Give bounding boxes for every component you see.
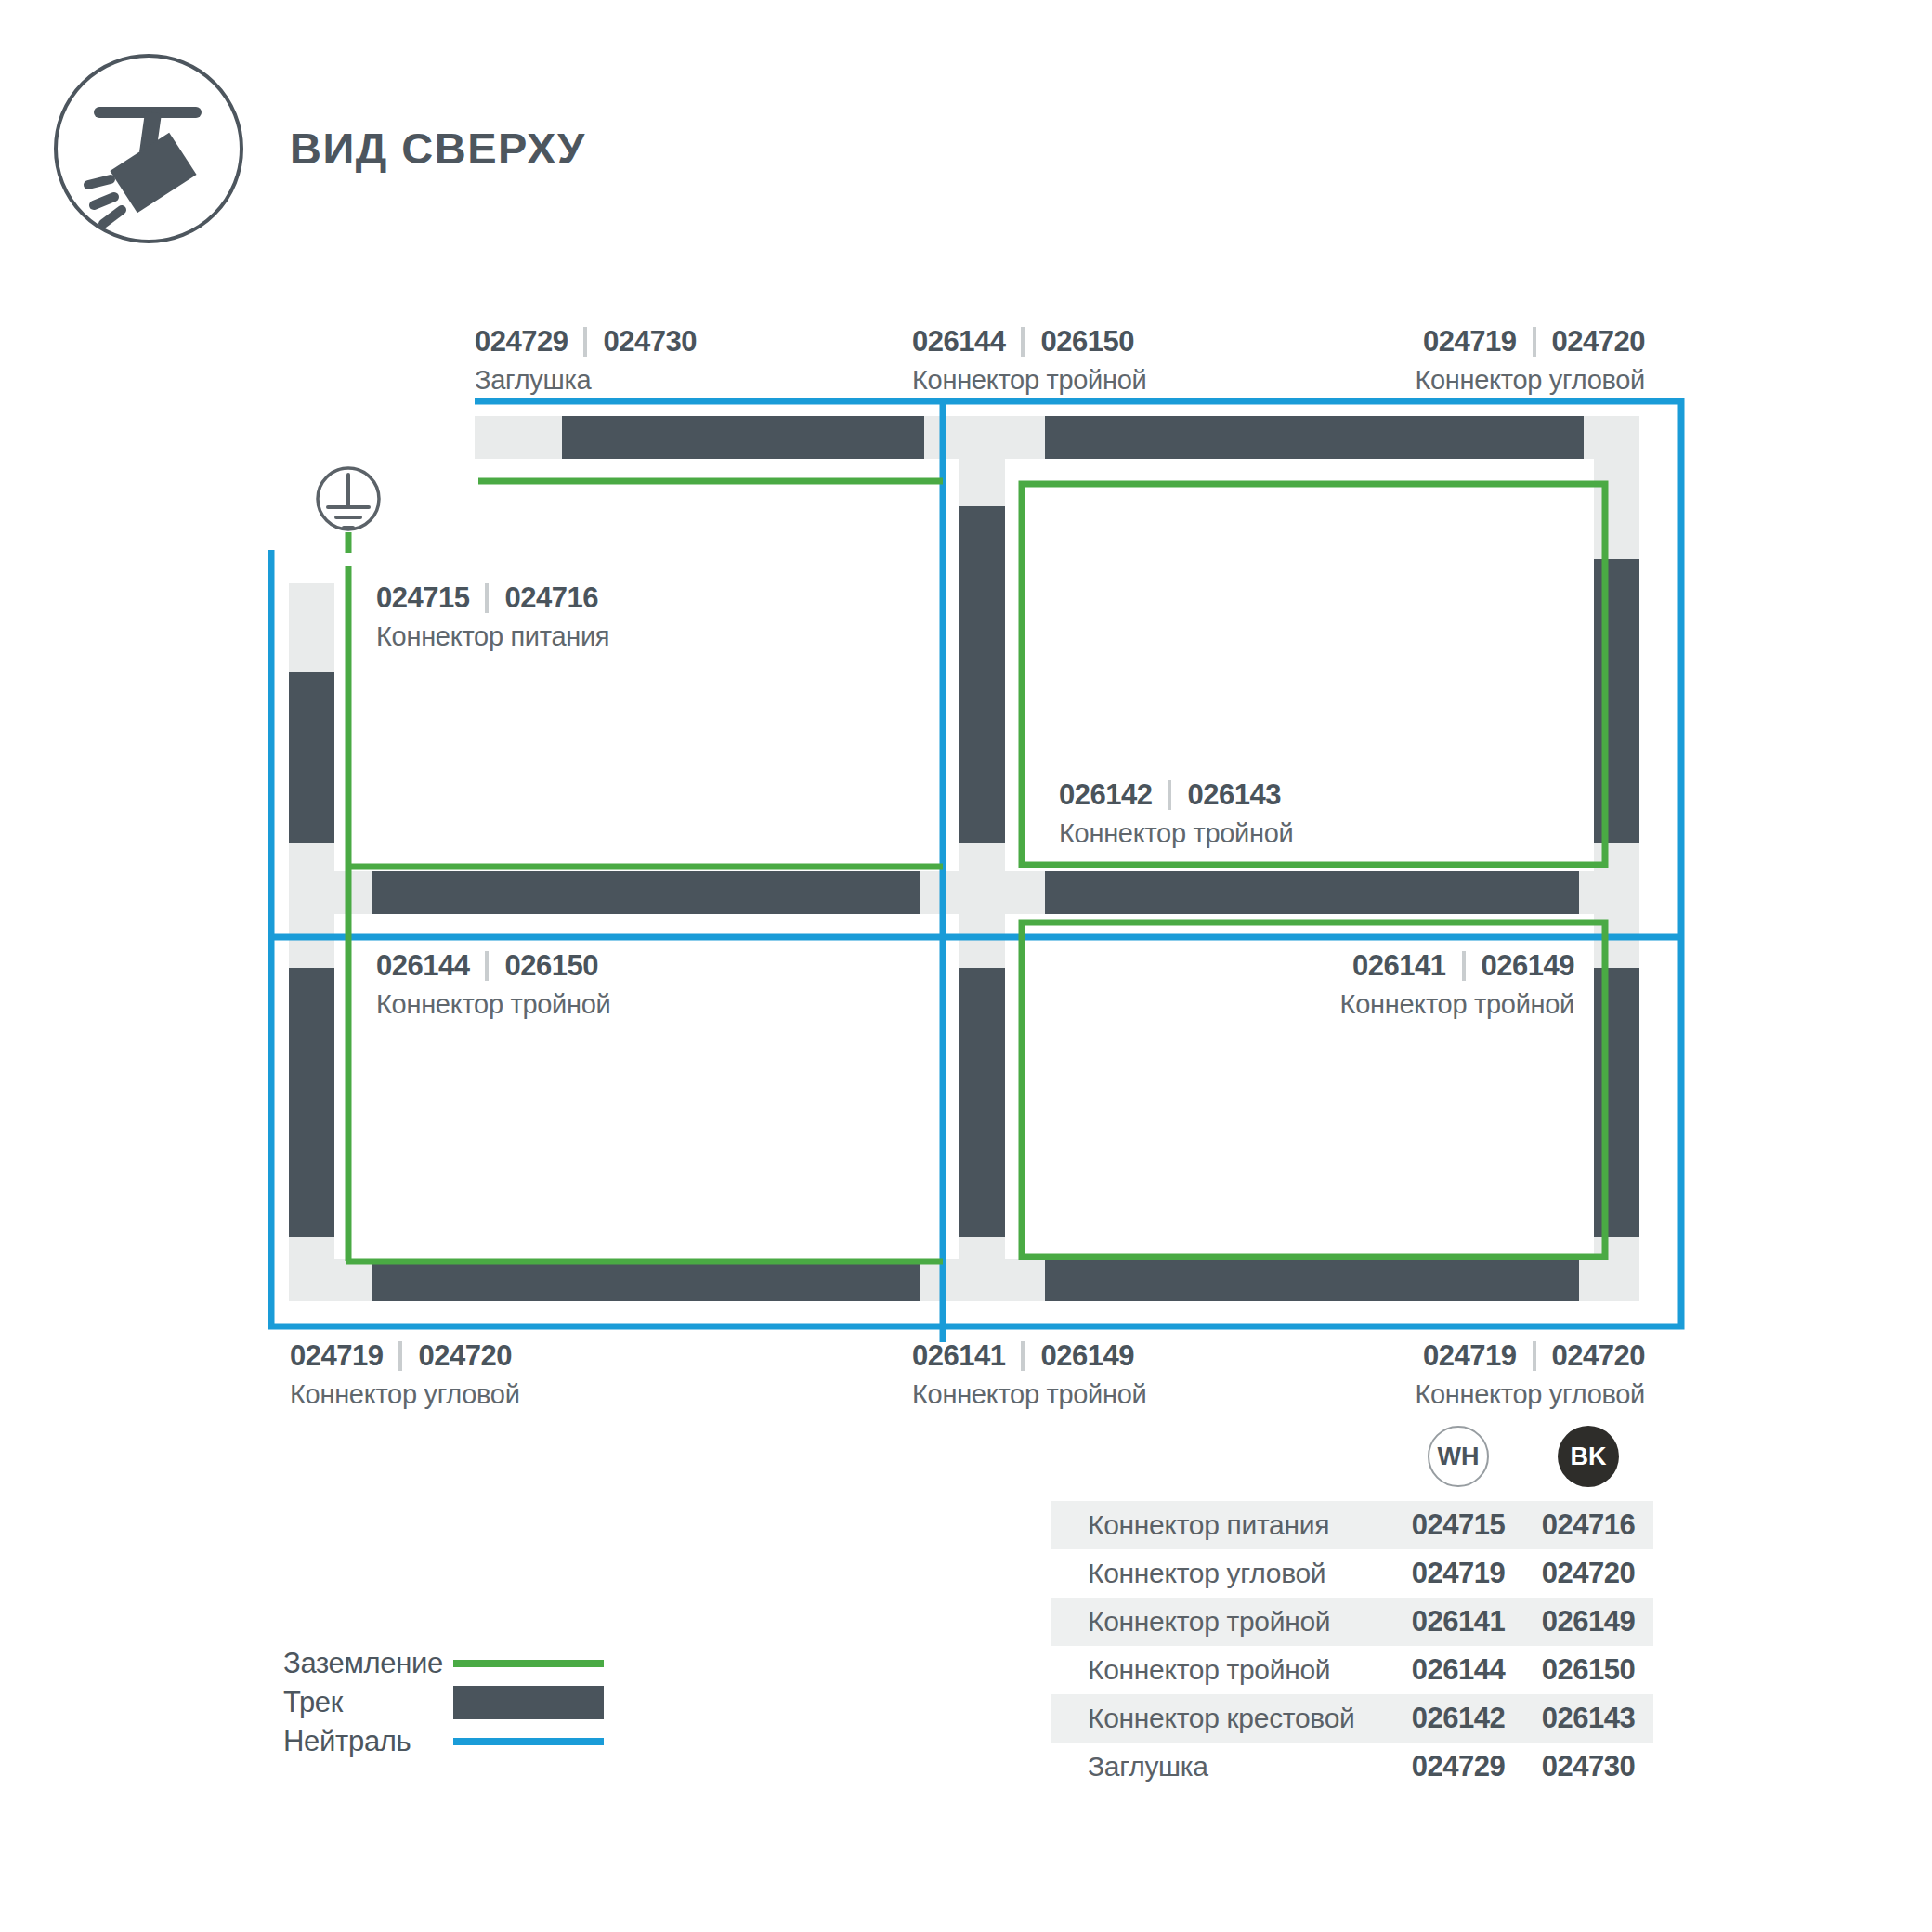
part-name-cell: Коннектор крестовой: [1051, 1703, 1393, 1734]
ground-line-swatch: [453, 1660, 604, 1667]
wh-code-cell: 024729: [1393, 1750, 1523, 1783]
divider: [1021, 1341, 1025, 1371]
divider: [1462, 951, 1466, 981]
part-code-wh: 024719: [290, 1339, 383, 1373]
part-code-bk: 024730: [603, 325, 696, 359]
part-name: Коннектор угловой: [1415, 1379, 1645, 1410]
divider: [398, 1341, 402, 1371]
white-color-badge: WH: [1428, 1426, 1489, 1487]
part-label-end-cap-top: 024729024730 Заглушка: [475, 325, 697, 396]
legend-label: Трек: [283, 1686, 453, 1719]
bk-code-cell: 024730: [1523, 1750, 1653, 1783]
legend-item-track: Трек: [283, 1683, 604, 1722]
table-row: Коннектор питания 024715 024716: [1051, 1501, 1653, 1549]
table-row: Заглушка 024729 024730: [1051, 1743, 1653, 1791]
part-code-wh: 026142: [1059, 778, 1152, 812]
wh-code-cell: 024715: [1393, 1508, 1523, 1542]
legend-item-ground: Заземление: [283, 1644, 604, 1683]
part-name: Коннектор угловой: [290, 1379, 520, 1410]
part-code-bk: 024716: [504, 581, 597, 615]
part-label-corner-bottom-right: 024719024720 Коннектор угловой: [1415, 1339, 1645, 1410]
divider: [1168, 780, 1171, 810]
part-label-t-connector-top: 026144026150 Коннектор тройной: [912, 325, 1146, 396]
part-label-cross-connector: 026142026143 Коннектор тройной: [1059, 778, 1293, 849]
track-segment: [1045, 416, 1584, 459]
bk-code-cell: 026143: [1523, 1702, 1653, 1735]
part-label-corner-top-right: 024719024720 Коннектор угловой: [1415, 325, 1645, 396]
part-name: Коннектор тройной: [376, 989, 610, 1020]
track-segment: [1594, 968, 1639, 1237]
part-name-cell: Коннектор угловой: [1051, 1558, 1393, 1589]
legend-label: Нейтраль: [283, 1725, 453, 1758]
part-name-cell: Коннектор тройной: [1051, 1606, 1393, 1638]
part-label-power-connector: 024715024716 Коннектор питания: [376, 581, 609, 652]
part-name: Коннектор тройной: [1340, 989, 1574, 1020]
part-code-wh: 026141: [912, 1339, 1005, 1373]
part-name: Коннектор тройной: [1059, 818, 1293, 849]
page: { "header": { "title": "ВИД СВЕРХУ" }, "…: [0, 0, 1932, 1932]
part-code-bk: 024720: [418, 1339, 511, 1373]
part-name: Коннектор тройной: [912, 365, 1146, 396]
table-row: Коннектор тройной 026141 026149: [1051, 1598, 1653, 1646]
bk-code-cell: 024720: [1523, 1557, 1653, 1590]
ground-symbol-icon: [318, 468, 379, 529]
track-segment: [1045, 871, 1579, 914]
part-code-wh: 026144: [376, 949, 469, 983]
divider: [583, 327, 587, 357]
part-code-bk: 026149: [1482, 949, 1574, 983]
part-code-bk: 024720: [1552, 325, 1645, 359]
divider: [1533, 327, 1536, 357]
table-row: Коннектор угловой 024719 024720: [1051, 1549, 1653, 1598]
part-label-corner-bottom-left: 024719024720 Коннектор угловой: [290, 1339, 520, 1410]
track-segment: [1594, 559, 1639, 843]
part-name: Коннектор угловой: [1415, 365, 1645, 396]
bk-code-cell: 024716: [1523, 1508, 1653, 1542]
part-code-wh: 024715: [376, 581, 469, 615]
part-code-bk: 026149: [1040, 1339, 1133, 1373]
legend-label: Заземление: [283, 1647, 453, 1680]
track-segment: [1045, 1259, 1579, 1301]
part-name: Заглушка: [475, 365, 697, 396]
part-code-bk: 024720: [1552, 1339, 1645, 1373]
part-name: Коннектор питания: [376, 621, 609, 652]
part-label-t-connector-mid-right: 026141026149 Коннектор тройной: [1340, 949, 1574, 1020]
part-code-bk: 026143: [1187, 778, 1280, 812]
wh-code-cell: 026142: [1393, 1702, 1523, 1735]
part-code-bk: 026150: [504, 949, 597, 983]
part-code-bk: 026150: [1040, 325, 1133, 359]
bk-code-cell: 026150: [1523, 1653, 1653, 1687]
part-name-cell: Заглушка: [1051, 1751, 1393, 1782]
divider: [1021, 327, 1025, 357]
parts-table: WH BK Коннектор питания 024715 024716 Ко…: [1051, 1426, 1653, 1791]
bk-code-cell: 026149: [1523, 1605, 1653, 1638]
track-segment: [372, 1259, 920, 1301]
track-segment: [289, 968, 334, 1237]
track-segment: [959, 506, 1005, 843]
wh-code-cell: 024719: [1393, 1557, 1523, 1590]
divider: [485, 951, 489, 981]
part-code-wh: 026141: [1352, 949, 1445, 983]
part-code-wh: 024719: [1423, 1339, 1516, 1373]
black-color-badge: BK: [1558, 1426, 1619, 1487]
track-segment: [959, 968, 1005, 1237]
color-header-row: WH BK: [1051, 1426, 1653, 1487]
legend-item-neutral: Нейтраль: [283, 1722, 604, 1761]
part-code-wh: 026144: [912, 325, 1005, 359]
track-segment: [562, 416, 924, 459]
legend: Заземление Трек Нейтраль: [283, 1644, 604, 1761]
track-swatch: [453, 1686, 604, 1719]
divider: [1533, 1341, 1536, 1371]
part-name-cell: Коннектор питания: [1051, 1509, 1393, 1541]
wh-code-cell: 026141: [1393, 1605, 1523, 1638]
part-label-t-connector-mid-left: 026144026150 Коннектор тройной: [376, 949, 610, 1020]
part-code-wh: 024729: [475, 325, 568, 359]
part-name: Коннектор тройной: [912, 1379, 1146, 1410]
table-row: Коннектор крестовой 026142 026143: [1051, 1694, 1653, 1743]
part-name-cell: Коннектор тройной: [1051, 1654, 1393, 1686]
divider: [485, 583, 489, 613]
neutral-line-swatch: [453, 1738, 604, 1745]
table-row: Коннектор тройной 026144 026150: [1051, 1646, 1653, 1694]
wh-code-cell: 026144: [1393, 1653, 1523, 1687]
part-code-wh: 024719: [1423, 325, 1516, 359]
part-label-t-connector-bottom: 026141026149 Коннектор тройной: [912, 1339, 1146, 1410]
track-segment: [372, 871, 920, 914]
track-segment: [289, 672, 334, 843]
